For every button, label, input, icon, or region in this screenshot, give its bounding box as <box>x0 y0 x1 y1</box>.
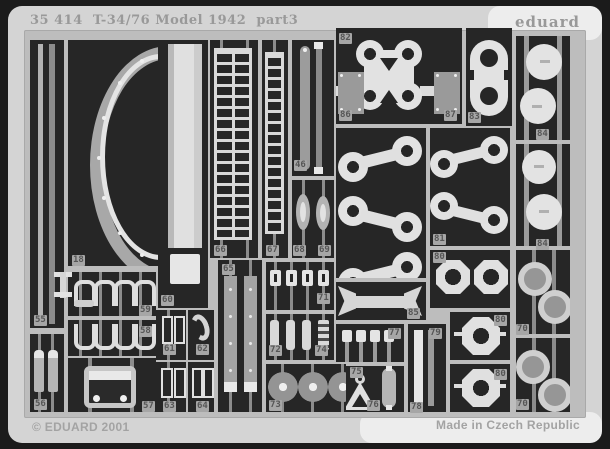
part-hole <box>480 49 498 67</box>
part-number-label-68: 68 <box>293 245 306 256</box>
part-shape <box>454 332 462 336</box>
part-number-label-86: 86 <box>339 110 352 121</box>
photoetch-sheet-photo: 35 414 T-34/76 Model 1942 part3 eduard <box>0 0 610 449</box>
part-number-label-87: 87 <box>444 110 457 121</box>
part-strip <box>414 330 423 406</box>
part-shape <box>314 42 323 49</box>
part-number-label-71: 71 <box>317 293 330 304</box>
part-number-label-18: 18 <box>72 255 85 266</box>
part-lamp-disc <box>328 372 346 402</box>
part-capsule <box>382 368 396 408</box>
rivet <box>97 156 101 160</box>
fret-cell-70a <box>516 250 570 334</box>
part-shape <box>359 342 363 362</box>
part-lamp-disc <box>298 372 328 402</box>
part-strap <box>48 350 58 392</box>
part-shape <box>373 342 377 362</box>
part-number-label-75: 75 <box>350 367 363 378</box>
part-bar <box>359 263 403 278</box>
header-spacer <box>83 13 93 28</box>
part-shape <box>322 274 325 282</box>
part-strip <box>428 330 434 406</box>
part-leaf <box>296 194 310 230</box>
part-shape <box>274 274 277 282</box>
part-hook <box>134 280 156 306</box>
origin-text: Made in Czech Republic <box>436 418 580 432</box>
part-towbar <box>52 270 96 310</box>
part-wheel-disc <box>522 150 556 184</box>
part-number-label-57: 57 <box>142 401 155 412</box>
rivet <box>436 74 439 77</box>
runner <box>557 144 562 246</box>
part-octagon-nut <box>474 260 508 294</box>
part-shape <box>387 342 391 362</box>
header-spacer <box>246 13 256 28</box>
part-number-label-74: 74 <box>315 345 328 356</box>
part-riveted-strip <box>244 276 257 382</box>
part-number-label-85: 85 <box>407 308 420 319</box>
part-number-label-60: 60 <box>161 295 174 306</box>
part-shape <box>532 105 542 108</box>
part-number-label-58: 58 <box>139 326 152 337</box>
part-number-label-72: 72 <box>269 345 282 356</box>
part-bolt <box>302 270 313 286</box>
part-hook <box>74 324 96 350</box>
part-bar <box>352 296 408 308</box>
part-shape <box>290 274 293 282</box>
part-wheel-disc <box>520 88 556 124</box>
part-shape <box>306 274 309 282</box>
part-number-label-65: 65 <box>222 264 235 275</box>
part-dumbbell <box>430 188 508 234</box>
part-number-label-73: 73 <box>269 400 282 411</box>
part-shape <box>74 300 94 307</box>
rivet <box>118 81 122 85</box>
part-dumbbell <box>338 136 424 184</box>
rivet <box>140 59 144 63</box>
part-bolt <box>270 270 281 286</box>
part-number-label-66: 66 <box>214 245 227 256</box>
fret-cell-84a <box>516 36 570 140</box>
part-shape <box>534 165 544 168</box>
fret-cell-66 <box>210 40 258 258</box>
part-buckle <box>203 368 214 398</box>
part-hook <box>94 324 116 350</box>
part-ring <box>394 82 422 110</box>
rivet <box>436 108 439 111</box>
part-shape <box>386 366 392 371</box>
part-number-label-69: 69 <box>318 245 331 256</box>
part-number-label-77: 77 <box>388 328 401 339</box>
part-hook <box>94 280 116 306</box>
part-strap <box>286 320 295 350</box>
part-number-label-61: 61 <box>163 344 176 355</box>
part-bolt <box>370 330 380 342</box>
part-ring <box>356 40 384 68</box>
part-plate-87 <box>434 72 460 114</box>
part-dumbbell <box>338 194 424 242</box>
part-leaf <box>316 196 330 230</box>
part-shape <box>89 371 131 380</box>
part-number-label-46: 46 <box>294 160 307 171</box>
part-number-label-84: 84 <box>536 129 549 140</box>
part-bracket <box>170 254 200 284</box>
part-number-label-55: 55 <box>34 315 47 326</box>
brand-logo: eduard <box>515 13 580 31</box>
header-title: 35 414 T-34/76 Model 1942 part3 <box>30 13 298 28</box>
catalog-number: 35 414 <box>30 13 83 28</box>
kit-title: T-34/76 Model 1942 <box>93 13 246 28</box>
part-bolt <box>318 270 329 286</box>
rivet <box>340 74 343 77</box>
part-wheel-ring <box>538 290 570 324</box>
part-plate-86 <box>338 72 364 114</box>
part-number-label-83: 83 <box>468 112 481 123</box>
part-c-hook <box>188 312 213 343</box>
part-hole <box>480 87 498 105</box>
part-number-label-84: 84 <box>536 239 549 250</box>
part-buckle <box>161 368 173 398</box>
copyright-text: © EDUARD 2001 <box>32 420 129 434</box>
fret-cell-46 <box>292 40 334 176</box>
part-number-label-56: 56 <box>34 399 47 410</box>
part-shape <box>314 167 323 174</box>
rivet <box>93 395 100 402</box>
part-bolt <box>286 270 297 286</box>
part-octagon-nut <box>436 260 470 294</box>
fret-cell-67 <box>262 40 288 258</box>
part-suffix: part3 <box>256 13 298 28</box>
rivet <box>358 108 361 111</box>
part-strip <box>300 46 310 170</box>
part-bar <box>449 205 489 225</box>
part-bolt <box>342 330 352 342</box>
part-number-label-82: 82 <box>339 33 352 44</box>
part-buckle <box>174 368 186 398</box>
part-box <box>84 366 136 408</box>
rivet <box>102 116 106 120</box>
part-shape <box>54 292 72 297</box>
fret-cell-65 <box>218 260 262 412</box>
part-wheel-ring <box>538 378 570 412</box>
fret-cell-81 <box>430 128 510 246</box>
part-number-label-76: 76 <box>367 400 380 411</box>
part-figure8 <box>470 40 508 116</box>
part-number-label-70: 70 <box>516 324 529 335</box>
part-shape <box>386 405 392 410</box>
part-dumbbell <box>338 252 424 278</box>
part-clip <box>162 316 173 344</box>
part-bar <box>359 209 403 231</box>
rivet <box>120 395 127 402</box>
part-number-label-78: 78 <box>410 402 423 413</box>
part-hook <box>114 280 136 306</box>
part-shape <box>345 342 349 362</box>
rivet <box>358 74 361 77</box>
rivet <box>454 74 457 77</box>
part-number-label-59: 59 <box>139 305 152 316</box>
part-hook <box>114 324 136 350</box>
part-ring <box>394 40 422 68</box>
part-shape <box>454 384 462 388</box>
part-grille <box>265 52 284 234</box>
part-wheel-disc <box>526 44 562 80</box>
part-number-label-80: 80 <box>433 252 446 263</box>
part-number-label-81: 81 <box>433 234 446 245</box>
part-bar <box>359 147 403 169</box>
part-number-label-62: 62 <box>196 344 209 355</box>
part-riveted-strip <box>224 276 237 382</box>
part-clip <box>174 316 185 344</box>
rivet <box>140 253 144 257</box>
fret-cell-60 <box>158 40 208 308</box>
fret-cell-18 <box>68 40 164 266</box>
part-dumbbell <box>430 136 508 182</box>
fret-cell-84b <box>516 144 570 246</box>
part-shape <box>224 382 237 392</box>
part-strap <box>302 320 311 350</box>
fret-cell-dumbbells <box>336 128 426 278</box>
part-buckle <box>192 368 203 398</box>
part-wheel-ring <box>516 350 550 384</box>
part-shape <box>232 51 235 237</box>
part-lamp-disc <box>268 372 298 402</box>
part-shape <box>244 382 257 392</box>
part-shape <box>320 204 326 222</box>
runner <box>38 44 43 324</box>
part-bar <box>449 146 489 166</box>
part-number-label-80: 80 <box>494 369 507 380</box>
part-number-label-79: 79 <box>429 328 442 339</box>
part-shape <box>300 202 306 222</box>
part-shape <box>540 60 550 63</box>
part-number-label-67: 67 <box>266 245 279 256</box>
part-strip <box>316 46 322 170</box>
part-bolt <box>356 330 366 342</box>
rivet <box>118 231 122 235</box>
part-wheel-disc <box>526 194 562 230</box>
part-notch <box>468 70 474 80</box>
part-number-label-70: 70 <box>516 399 529 410</box>
part-fender <box>168 44 202 248</box>
part-number-label-80: 80 <box>494 315 507 326</box>
part-number-label-63: 63 <box>163 401 176 412</box>
part-grille <box>214 48 252 240</box>
rivet <box>303 48 307 52</box>
part-number-label-64: 64 <box>196 401 209 412</box>
part-shape <box>539 210 549 213</box>
part-notch <box>504 70 510 80</box>
rivet <box>102 196 106 200</box>
part-fork-end <box>338 286 356 316</box>
part-strap <box>34 350 44 392</box>
